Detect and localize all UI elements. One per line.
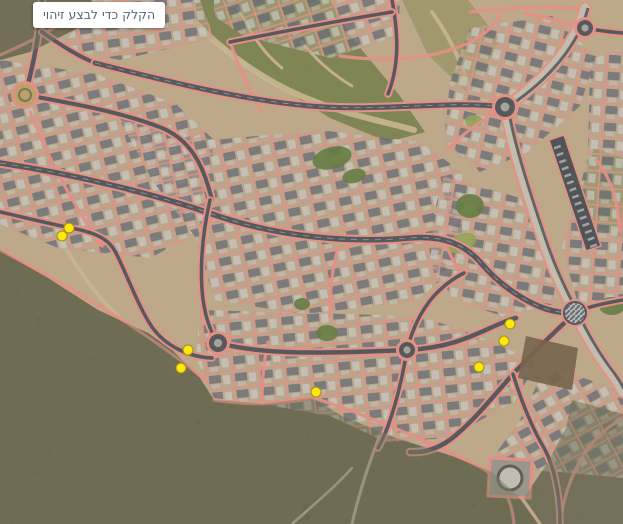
map-marker[interactable]: [183, 345, 193, 355]
map-marker[interactable]: [57, 231, 67, 241]
map-marker[interactable]: [311, 387, 321, 397]
map-marker[interactable]: [176, 363, 186, 373]
map-marker[interactable]: [499, 336, 509, 346]
identify-tooltip: הקלק כדי לבצע זיהוי: [33, 2, 165, 28]
map-marker[interactable]: [474, 362, 484, 372]
satellite-map[interactable]: [0, 0, 623, 524]
map-marker[interactable]: [64, 223, 74, 233]
map-marker[interactable]: [505, 319, 515, 329]
map-canvas[interactable]: הקלק כדי לבצע זיהוי: [0, 0, 623, 524]
